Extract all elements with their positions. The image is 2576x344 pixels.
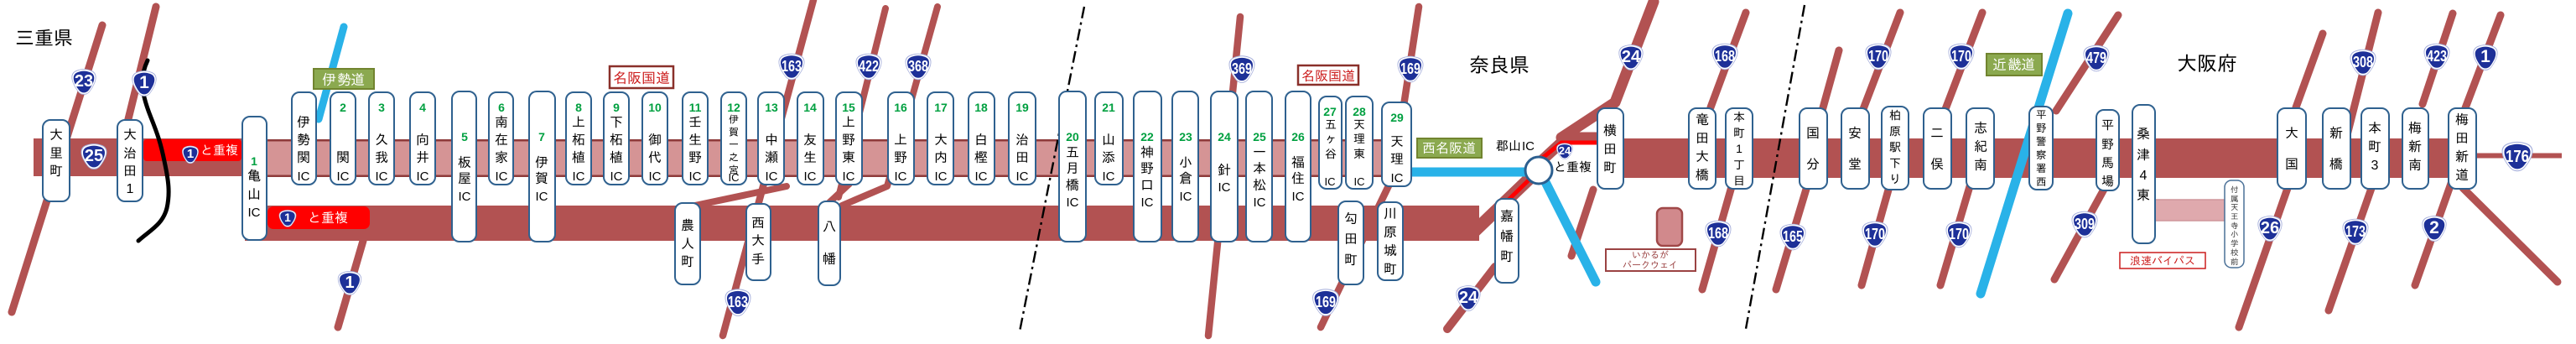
svg-text:19: 19 <box>1015 101 1029 114</box>
svg-text:IC: IC <box>248 206 261 220</box>
svg-text:20: 20 <box>1066 130 1079 143</box>
svg-text:13: 13 <box>765 101 778 114</box>
svg-text:423: 423 <box>2427 48 2447 65</box>
svg-text:173: 173 <box>2345 223 2366 240</box>
svg-text:22: 22 <box>1140 130 1154 143</box>
svg-text:IC: IC <box>689 169 702 184</box>
svg-text:IC: IC <box>1218 180 1231 195</box>
svg-text:24: 24 <box>1218 130 1231 143</box>
svg-text:5: 5 <box>461 130 468 143</box>
svg-text:IC: IC <box>1391 171 1404 185</box>
svg-text:422: 422 <box>859 58 879 75</box>
svg-text:15: 15 <box>842 101 855 114</box>
svg-text:10: 10 <box>648 101 662 114</box>
svg-text:1: 1 <box>187 147 194 161</box>
svg-text:IC: IC <box>459 190 471 204</box>
svg-text:25: 25 <box>1253 130 1266 143</box>
svg-text:1: 1 <box>127 182 134 196</box>
svg-text:IC: IC <box>1180 190 1192 204</box>
svg-text:168: 168 <box>1715 48 1735 65</box>
svg-text:IC: IC <box>536 190 548 204</box>
svg-text:309: 309 <box>2075 216 2095 232</box>
svg-text:26: 26 <box>2261 219 2279 237</box>
svg-text:14: 14 <box>803 101 817 114</box>
svg-text:1: 1 <box>251 154 257 168</box>
svg-text:2: 2 <box>340 101 346 114</box>
svg-text:27: 27 <box>1323 105 1337 118</box>
svg-text:IC: IC <box>1103 169 1115 184</box>
svg-text:176: 176 <box>2506 148 2529 166</box>
svg-text:6: 6 <box>498 101 505 114</box>
svg-text:IC: IC <box>766 169 778 184</box>
svg-text:IC: IC <box>610 169 623 184</box>
svg-text:IC: IC <box>1522 139 1535 154</box>
svg-text:308: 308 <box>2353 54 2373 70</box>
svg-text:IC: IC <box>895 169 907 184</box>
svg-text:IC: IC <box>1141 195 1154 210</box>
svg-text:21: 21 <box>1102 101 1115 114</box>
svg-text:479: 479 <box>2086 50 2106 66</box>
svg-text:IC: IC <box>804 169 817 184</box>
svg-text:368: 368 <box>908 58 928 75</box>
svg-text:169: 169 <box>1316 294 1336 310</box>
svg-text:IC: IC <box>975 169 988 184</box>
svg-text:IC: IC <box>843 169 855 184</box>
svg-text:4: 4 <box>419 101 426 114</box>
svg-text:IC: IC <box>496 169 508 184</box>
svg-text:IC: IC <box>417 169 429 184</box>
svg-text:3: 3 <box>2371 159 2379 173</box>
svg-text:IC: IC <box>1354 175 1365 188</box>
svg-text:1: 1 <box>1736 142 1742 155</box>
svg-text:28: 28 <box>1353 105 1366 118</box>
svg-text:26: 26 <box>1291 130 1305 143</box>
svg-text:IC: IC <box>649 169 662 184</box>
svg-text:7: 7 <box>538 130 545 143</box>
svg-text:163: 163 <box>728 294 748 310</box>
svg-text:24: 24 <box>1559 144 1571 157</box>
svg-text:369: 369 <box>1232 60 1252 77</box>
svg-text:IC: IC <box>1016 169 1029 184</box>
svg-text:IC: IC <box>729 171 740 184</box>
svg-text:1: 1 <box>2480 47 2490 66</box>
svg-text:IC: IC <box>1325 175 1336 188</box>
svg-text:1: 1 <box>345 274 354 292</box>
svg-text:IC: IC <box>337 169 350 184</box>
svg-text:170: 170 <box>1951 48 1971 65</box>
svg-text:24: 24 <box>1622 48 1641 66</box>
svg-text:IC: IC <box>573 169 585 184</box>
svg-text:17: 17 <box>934 101 948 114</box>
svg-text:IC: IC <box>1254 195 1266 210</box>
svg-text:8: 8 <box>575 101 582 114</box>
svg-text:23: 23 <box>75 72 93 91</box>
svg-text:18: 18 <box>974 101 988 114</box>
svg-text:168: 168 <box>1708 225 1728 242</box>
svg-text:169: 169 <box>1400 60 1420 77</box>
svg-text:9: 9 <box>613 101 620 114</box>
svg-text:16: 16 <box>894 101 907 114</box>
svg-text:IC: IC <box>298 169 310 184</box>
svg-text:25: 25 <box>85 147 103 165</box>
svg-text:4: 4 <box>2140 169 2148 183</box>
svg-text:IC: IC <box>935 169 948 184</box>
svg-text:IC: IC <box>1067 195 1079 210</box>
svg-text:23: 23 <box>1179 130 1192 143</box>
svg-text:170: 170 <box>1949 226 1969 242</box>
svg-text:24: 24 <box>1459 289 1478 307</box>
svg-text:163: 163 <box>782 58 802 75</box>
svg-text:1: 1 <box>284 211 291 224</box>
svg-text:165: 165 <box>1783 228 1803 245</box>
svg-text:IC: IC <box>1292 190 1305 204</box>
svg-text:12: 12 <box>727 101 740 114</box>
svg-text:170: 170 <box>1865 226 1885 242</box>
svg-text:3: 3 <box>378 101 385 114</box>
svg-text:1: 1 <box>139 73 149 92</box>
svg-text:2: 2 <box>2429 218 2439 237</box>
svg-text:29: 29 <box>1390 111 1404 124</box>
svg-text:IC: IC <box>376 169 388 184</box>
svg-text:11: 11 <box>689 101 702 114</box>
svg-text:170: 170 <box>1868 48 1888 65</box>
